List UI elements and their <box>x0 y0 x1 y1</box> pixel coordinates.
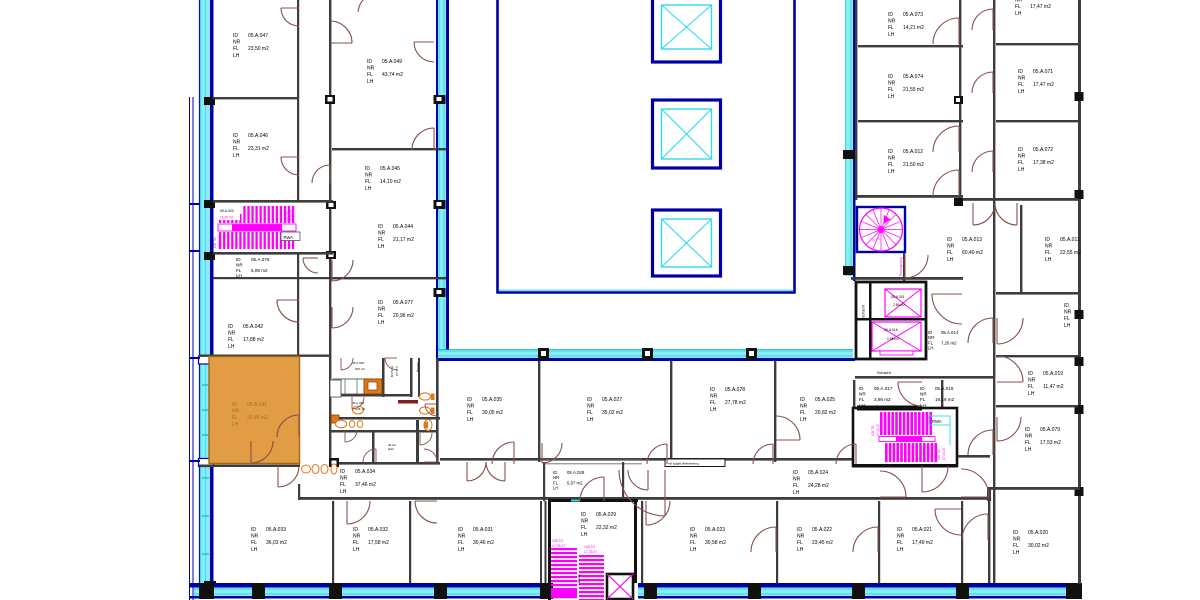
svg-text:fgfsd: fgfsd <box>388 447 394 451</box>
svg-text:105 TO: 105 TO <box>552 539 564 543</box>
svg-text:105 TO: 105 TO <box>937 449 941 460</box>
svg-text:Rettungsweg: Rettungsweg <box>899 257 903 276</box>
svg-text:17.25.07: 17.25.07 <box>584 550 597 554</box>
svg-text:mit sgfgfd dfsfwefwterg: mit sgfgfd dfsfwefwterg <box>668 462 699 466</box>
svg-text:105 TO: 105 TO <box>213 237 217 248</box>
svg-text:N07 m2: N07 m2 <box>355 367 365 371</box>
svg-text:2,96 m2: 2,96 m2 <box>887 337 899 341</box>
svg-text:05.A.015: 05.A.015 <box>891 295 904 299</box>
svg-text:17.24.07: 17.24.07 <box>942 447 946 460</box>
svg-text:05.A.040: 05.A.040 <box>352 361 364 365</box>
svg-text:105 TO: 105 TO <box>584 545 596 549</box>
svg-text:Lüftung: Lüftung <box>577 574 581 585</box>
svg-text:2,66 m2: 2,66 m2 <box>893 303 905 307</box>
svg-text:17.26.07: 17.26.07 <box>218 235 222 248</box>
svg-text:Schacht: Schacht <box>877 371 892 375</box>
svg-text:Lüftung: Lüftung <box>416 362 420 372</box>
svg-text:05.A.016: 05.A.016 <box>884 328 898 332</box>
svg-text:17.24.07: 17.24.07 <box>876 423 880 436</box>
svg-text:RWA: RWA <box>932 419 942 424</box>
svg-text:RWA: RWA <box>284 235 294 240</box>
svg-text:105 TO: 105 TO <box>871 425 875 436</box>
svg-text:Schacht: Schacht <box>862 305 866 318</box>
svg-text:17.26.07: 17.26.07 <box>290 209 294 222</box>
svg-text:105 TO: 105 TO <box>285 211 289 222</box>
svg-text:2,16 m2: 2,16 m2 <box>395 366 399 377</box>
svg-text:dfs fsd: dfs fsd <box>388 443 396 447</box>
svg-text:15,45 m2: 15,45 m2 <box>220 216 234 220</box>
svg-text:05.A.043: 05.A.043 <box>220 209 234 213</box>
svg-text:0,46 m2: 0,46 m2 <box>355 407 366 411</box>
svg-text:105 TO: 105 TO <box>601 589 605 598</box>
svg-text:17.25.07: 17.25.07 <box>552 544 565 548</box>
